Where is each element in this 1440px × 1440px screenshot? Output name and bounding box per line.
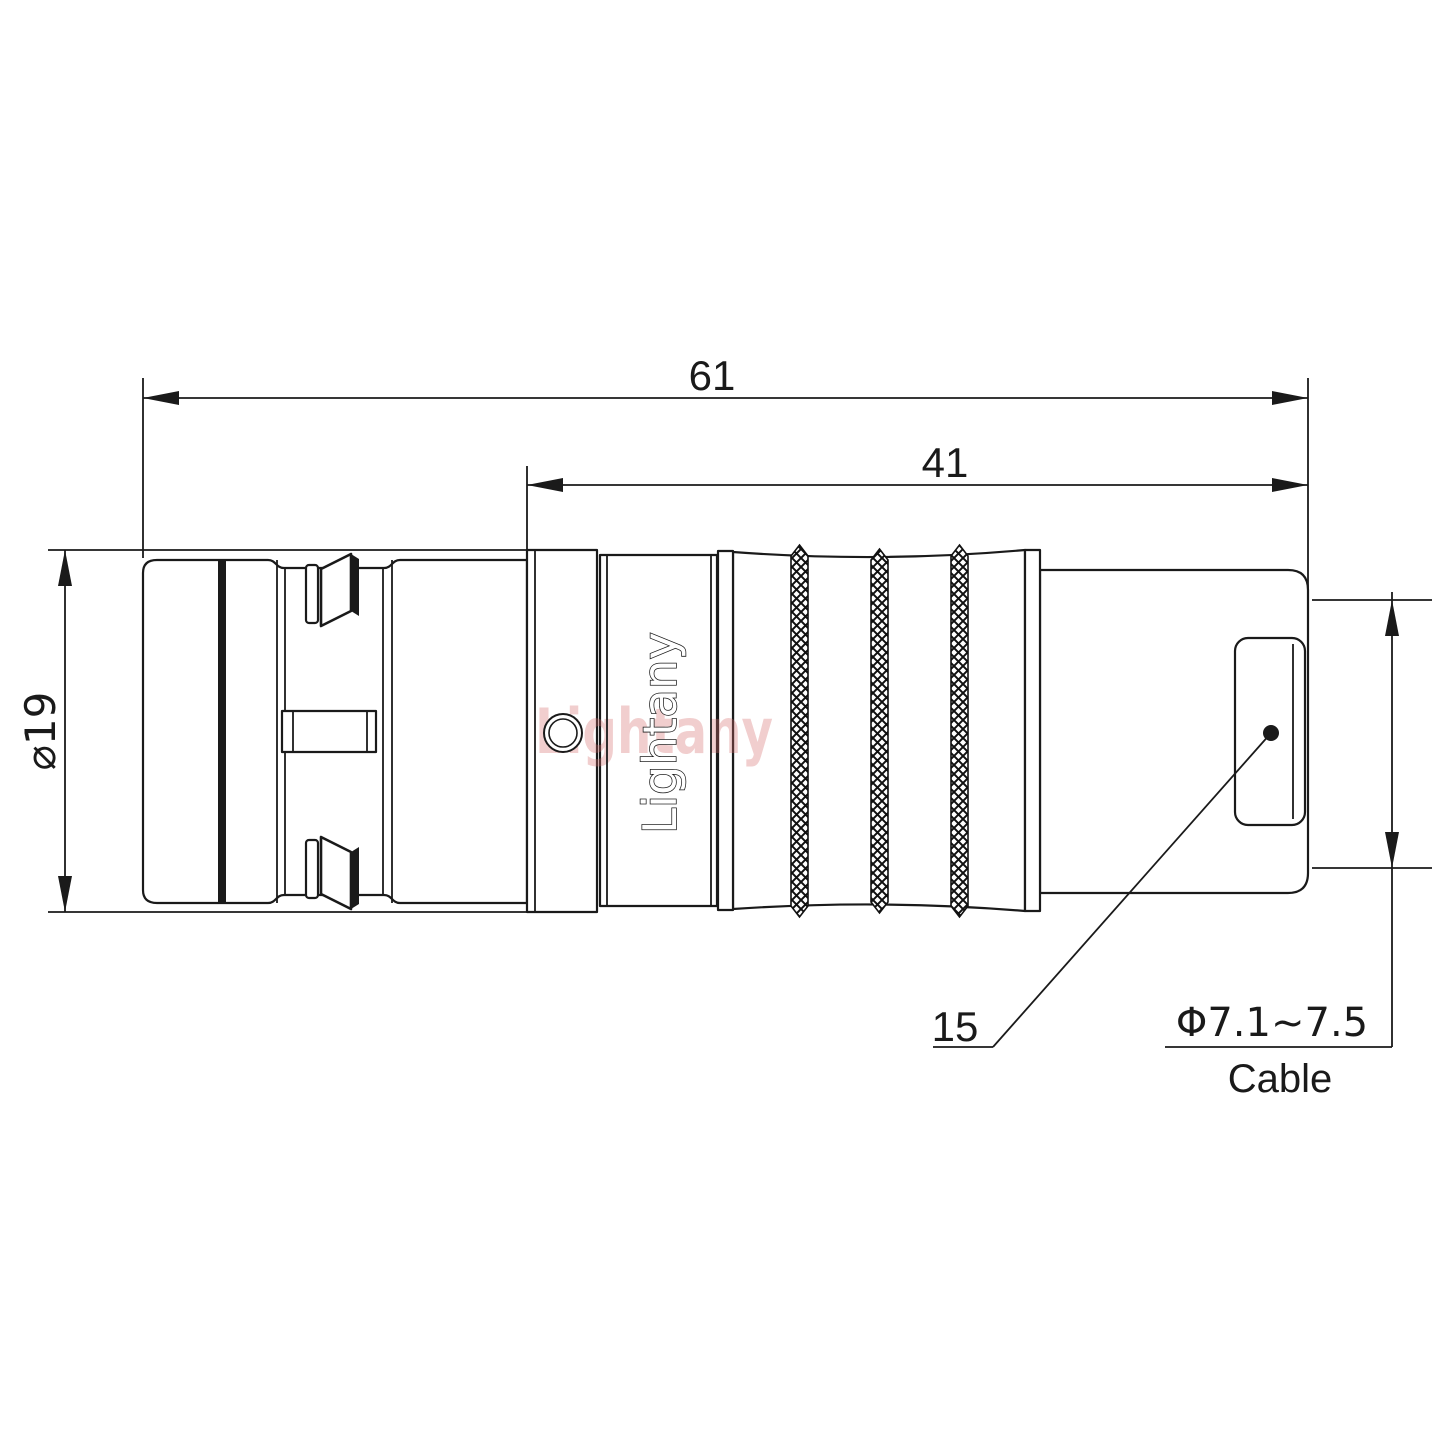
key-slot [282,711,376,752]
knurl-band-right [1025,550,1040,911]
drawing-page: Lightany Li [0,0,1440,1440]
knurl-strip [871,549,888,913]
dim-cable-label: Cable [1228,1057,1333,1101]
front-seal-band [218,560,226,903]
knurl-strip [951,545,968,917]
dimension-body-length: 41 [527,439,1308,552]
dim-body-length-value: 41 [922,439,969,486]
brand-engraving: Lightany [633,632,687,834]
knurl-strip [791,545,808,917]
cable-boot [1235,638,1305,825]
dim-diameter-value: ⌀19 [16,692,65,771]
dim-overall-length-value: 61 [689,352,736,399]
connector-technical-drawing: Lightany Li [0,0,1440,1440]
dim-cable-size-value: Φ7.1~7.5 [1176,1000,1368,1046]
dim-nut-size-value: 15 [932,1003,979,1050]
